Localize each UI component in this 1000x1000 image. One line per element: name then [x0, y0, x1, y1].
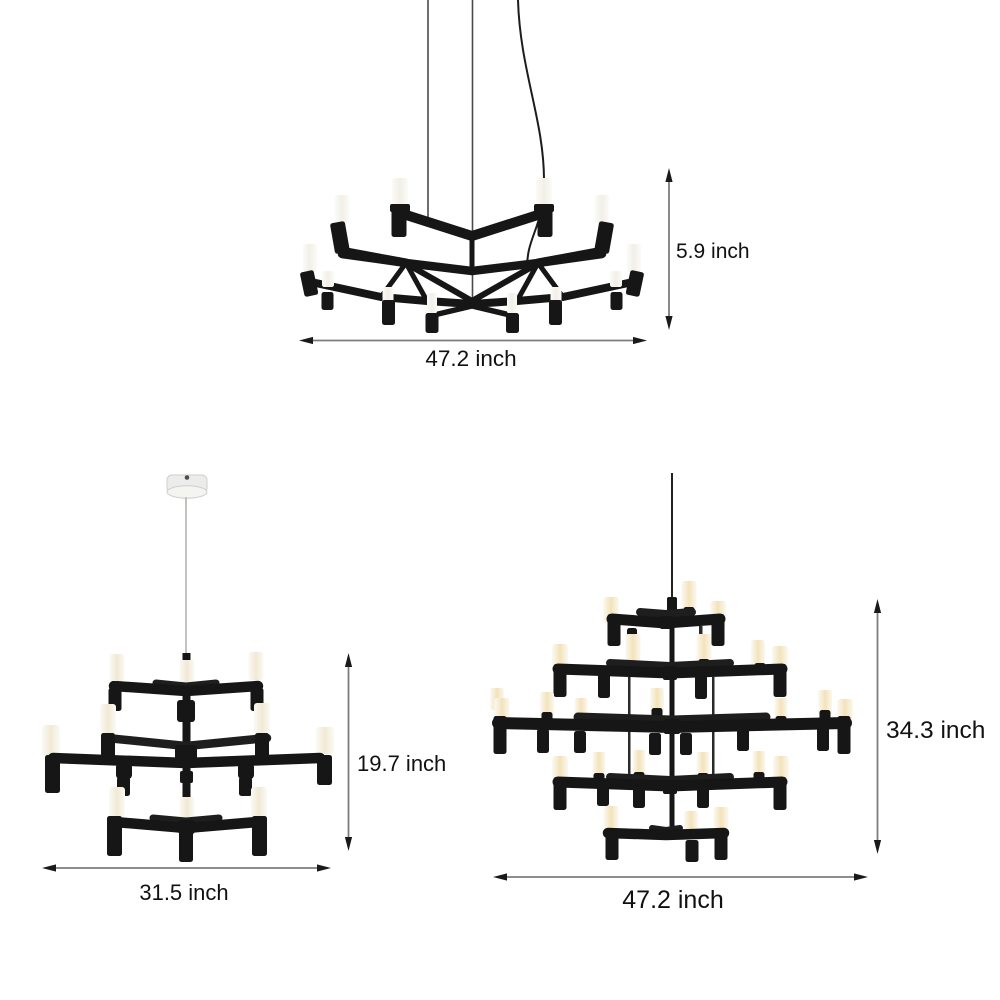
svg-text:47.2 inch: 47.2 inch	[622, 886, 723, 914]
svg-text:34.3 inch: 34.3 inch	[886, 717, 985, 744]
svg-text:5.9 inch: 5.9 inch	[676, 240, 750, 263]
svg-text:19.7 inch: 19.7 inch	[357, 751, 446, 776]
svg-text:31.5 inch: 31.5 inch	[139, 880, 228, 905]
svg-text:47.2 inch: 47.2 inch	[425, 346, 516, 371]
